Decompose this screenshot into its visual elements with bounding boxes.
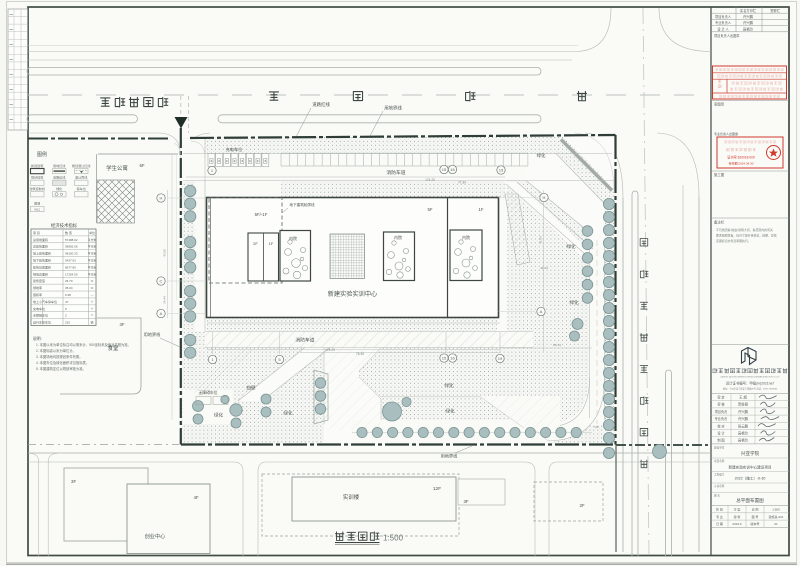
svg-text:个: 个 (91, 300, 94, 304)
svg-text:平方米: 平方米 (88, 259, 97, 263)
svg-text:平方米: 平方米 (88, 245, 97, 249)
svg-text:绿化: 绿化 (56, 186, 62, 191)
svg-text:创业中心: 创业中心 (145, 532, 166, 540)
svg-text:充电车位: 充电车位 (33, 306, 45, 311)
svg-text:内院: 内院 (289, 235, 297, 241)
svg-text:A: A (540, 309, 543, 314)
svg-text:工程编号: 工程编号 (714, 473, 725, 477)
svg-text:总平面布置图: 总平面布置图 (736, 497, 764, 504)
svg-text:项目负责人出图章: 项目负责人出图章 (714, 33, 740, 38)
svg-text:项目负责人: 项目负责人 (715, 14, 732, 19)
svg-text:建设单位: 建设单位 (714, 446, 725, 450)
svg-text:无障碍车位: 无障碍车位 (33, 313, 48, 318)
svg-text:2F: 2F (579, 503, 584, 508)
svg-text:1:500: 1:500 (383, 534, 404, 543)
svg-text:C: C (160, 279, 163, 284)
svg-text:77.30: 77.30 (458, 181, 466, 185)
svg-text:26.70: 26.70 (65, 279, 73, 283)
svg-text:H: H (160, 196, 163, 201)
svg-text:5F: 5F (427, 207, 432, 212)
svg-text:比 例: 比 例 (752, 507, 759, 512)
svg-text:绿化: 绿化 (445, 408, 455, 415)
svg-text:2024.6: 2024.6 (732, 522, 742, 526)
svg-text:新建实验实训中心: 新建实验实训中心 (328, 290, 378, 298)
svg-text:自行车停车位: 自行车停车位 (33, 320, 51, 325)
svg-text:现状建筑: 现状建筑 (31, 175, 43, 180)
svg-text:辆: 辆 (91, 321, 94, 325)
svg-text:有效期:2024.06.30: 有效期:2024.06.30 (729, 161, 754, 166)
svg-text:说明:: 说明: (33, 336, 42, 341)
svg-text:专业负责人出图章: 专业负责人出图章 (714, 131, 738, 136)
svg-text:3437.63: 3437.63 (65, 259, 76, 263)
svg-text:3F: 3F (120, 322, 125, 327)
svg-text:子项名称: 子项名称 (714, 484, 725, 488)
svg-text:食堂: 食堂 (108, 344, 119, 352)
svg-text:平方米: 平方米 (88, 265, 97, 269)
svg-text:19: 19 (498, 356, 503, 361)
svg-text:总建筑面积: 总建筑面积 (33, 244, 48, 249)
svg-text:2022（施工）-0-30: 2022（施工）-0-30 (735, 476, 766, 481)
svg-text:消防车道: 消防车道 (386, 169, 405, 176)
svg-text:经济技术指标: 经济技术指标 (51, 222, 78, 229)
svg-text:16: 16 (450, 167, 455, 172)
svg-text:新建实验实训中心建设项目: 新建实验实训中心建设项目 (728, 465, 771, 470)
svg-text:建筑密度: 建筑密度 (33, 278, 45, 283)
svg-text:47: 47 (65, 300, 69, 304)
svg-text:用地界线: 用地界线 (384, 105, 402, 112)
svg-text:签署栏: 签署栏 (770, 8, 780, 13)
svg-text:方 案: 方 案 (734, 507, 741, 512)
svg-text:道路红线: 道路红线 (312, 101, 330, 108)
svg-text:绿地总面积: 绿地总面积 (33, 271, 48, 276)
svg-text:容积率: 容积率 (33, 292, 42, 297)
svg-text:绿化: 绿化 (566, 243, 576, 250)
svg-text:实名打印栏: 实名打印栏 (740, 8, 757, 13)
svg-text:实训楼: 实训楼 (343, 493, 360, 501)
svg-text:绿化: 绿化 (569, 299, 579, 306)
svg-text:建筑基底面积: 建筑基底面积 (33, 264, 51, 269)
svg-text:高艳玲: 高艳玲 (738, 438, 749, 443)
svg-text:设 计 人: 设 计 人 (717, 26, 729, 31)
svg-text:用地界线: 用地界线 (144, 331, 162, 338)
svg-text:1:500: 1:500 (772, 508, 780, 512)
svg-text:3F: 3F (71, 479, 76, 484)
svg-text:许兴鹏: 许兴鹏 (743, 20, 754, 25)
svg-text:审图章: 审图章 (714, 102, 725, 107)
svg-text:19: 19 (499, 168, 504, 173)
svg-text:地上小汽车停车位: 地上小汽车停车位 (33, 299, 57, 304)
svg-text:项目负责: 项目负责 (715, 409, 728, 414)
svg-text:专 业: 专 业 (716, 514, 723, 519)
svg-text:平方米: 平方米 (88, 238, 97, 242)
svg-text:新建建筑: 新建建筑 (31, 163, 43, 168)
svg-text:审 定: 审 定 (717, 395, 725, 400)
svg-text:数 值: 数 值 (65, 230, 72, 235)
svg-text:项 目: 项 目 (33, 231, 40, 235)
svg-text:地下建筑轮廓线: 地下建筑轮廓线 (289, 202, 315, 207)
svg-text:施工图: 施工图 (714, 172, 725, 177)
svg-text:挡壁: 挡壁 (246, 385, 256, 392)
svg-text:1F: 1F (269, 241, 274, 246)
svg-text:建施总-001: 建施总-001 (768, 514, 783, 519)
svg-text:无障碍车位: 无障碍车位 (199, 390, 218, 395)
svg-text:174.20: 174.20 (425, 178, 435, 182)
svg-text:专业负责人: 专业负责人 (715, 20, 732, 25)
svg-text:7.00: 7.00 (593, 425, 599, 429)
svg-text:审 核: 审 核 (717, 402, 725, 407)
svg-text:贾俊丽: 贾俊丽 (738, 402, 749, 407)
svg-text:定期标识文件及审图执行。: 定期标识文件及审图执行。 (716, 238, 751, 243)
svg-text:单位: 单位 (89, 231, 95, 235)
svg-text:W12: W12 (34, 208, 40, 212)
svg-text:充电车位: 充电车位 (226, 146, 243, 153)
svg-text:17254.50: 17254.50 (65, 272, 78, 276)
svg-text:制 图: 制 图 (717, 438, 724, 443)
svg-text:许兴鹏: 许兴鹏 (743, 14, 754, 19)
svg-text:日 期: 日 期 (716, 521, 723, 526)
svg-text:12F: 12F (433, 486, 441, 492)
svg-text:消防车道: 消防车道 (295, 337, 314, 344)
svg-text:专业负责: 专业负责 (715, 416, 728, 421)
svg-text:9677.80: 9677.80 (65, 265, 76, 269)
svg-text:2F: 2F (253, 241, 258, 246)
svg-text:内院: 内院 (394, 234, 402, 240)
svg-text:内院: 内院 (462, 234, 470, 240)
svg-text:道路边线: 道路边线 (53, 175, 65, 180)
svg-text:学生公寓: 学生公寓 (106, 164, 128, 172)
svg-text:个: 个 (91, 314, 94, 318)
svg-text:16: 16 (450, 356, 455, 361)
svg-text:41.04: 41.04 (539, 236, 543, 244)
svg-text:15: 15 (442, 356, 447, 361)
svg-text:建筑控制线: 建筑控制线 (29, 186, 44, 191)
svg-text:项目名称: 项目名称 (714, 459, 725, 463)
svg-text:A: A (160, 311, 163, 316)
svg-text:H: H (543, 195, 546, 200)
svg-text:80.14: 80.14 (553, 343, 561, 347)
svg-text:设计证书编号：甲级(in)2021na7: 设计证书编号：甲级(in)2021na7 (726, 381, 775, 386)
svg-text:3F: 3F (463, 499, 468, 504)
svg-text:绿化: 绿化 (444, 382, 454, 389)
svg-text:版本号: 版本号 (750, 521, 759, 526)
svg-text:绿化: 绿化 (537, 152, 546, 159)
svg-text:绿化: 绿化 (283, 410, 293, 417)
svg-text:图 名: 图 名 (714, 494, 720, 498)
svg-text:41.04: 41.04 (540, 266, 548, 270)
svg-text:34.44: 34.44 (163, 296, 167, 304)
svg-text:4. 本图车位及绿化面积详见指标表。: 4. 本图车位及绿化面积详见指标表。 (36, 360, 89, 365)
svg-text:38150.33: 38150.33 (65, 252, 78, 256)
svg-text:围墙: 围墙 (34, 201, 40, 206)
svg-text:57188.02: 57188.02 (65, 238, 78, 242)
svg-text:图 号: 图 号 (752, 514, 759, 519)
svg-text:6F: 6F (139, 163, 144, 168)
svg-text:地上建筑面积: 地上建筑面积 (33, 251, 51, 256)
svg-text:地下建筑面积: 地下建筑面积 (33, 258, 51, 263)
svg-text:设 计: 设 计 (717, 431, 725, 436)
svg-text:规划退让红线: 规划退让红线 (72, 163, 91, 168)
svg-text:图例: 图例 (37, 151, 47, 158)
svg-text:38582.66: 38582.66 (65, 245, 78, 249)
svg-text:4F: 4F (193, 495, 198, 500)
svg-text:绿化: 绿化 (214, 412, 224, 419)
svg-text:2. 本图标高以米为单位计。: 2. 本图标高以米为单位计。 (36, 348, 76, 353)
svg-text:5. 本图建筑定位以规划审批为准。: 5. 本图建筑定位以规划审批为准。 (36, 366, 86, 371)
svg-text:建 筑: 建 筑 (734, 514, 741, 519)
svg-text:张云鹏: 张云鹏 (738, 423, 749, 428)
svg-text:3. 本图场地均按规划条件布置。: 3. 本图场地均按规划条件布置。 (36, 354, 83, 359)
svg-text:15: 15 (442, 167, 447, 172)
svg-text:平方米: 平方米 (88, 252, 97, 256)
svg-text:用地界线: 用地界线 (441, 453, 459, 460)
svg-text:总用地面积: 总用地面积 (33, 237, 48, 242)
svg-text:兴亚学院: 兴亚学院 (741, 450, 760, 457)
svg-text:1F: 1F (478, 207, 483, 212)
svg-text:220: 220 (65, 321, 70, 325)
svg-text:绿地率: 绿地率 (33, 285, 42, 290)
svg-text:平方米: 平方米 (88, 272, 97, 276)
svg-text:用地红线: 用地红线 (53, 163, 65, 168)
svg-text:备注栏: 备注栏 (714, 220, 725, 225)
svg-text:阶 段: 阶 段 (716, 507, 723, 512)
svg-text:0.38: 0.38 (65, 293, 71, 297)
svg-text:—: — (91, 293, 94, 297)
svg-text:174.20: 174.20 (325, 348, 335, 352)
svg-text:不可抗因素(地震)暴雨大风，各范围内的有关: 不可抗因素(地震)暴雨大风，各范围内的有关 (716, 227, 773, 232)
svg-text:许兴鹏: 许兴鹏 (738, 409, 749, 414)
svg-text:许兴鹏: 许兴鹏 (738, 416, 749, 421)
svg-text:76.45: 76.45 (356, 352, 364, 356)
svg-text:证书号:620018-009: 证书号:620018-009 (727, 155, 755, 160)
svg-text:校 对: 校 对 (717, 423, 725, 428)
svg-text:停车位: 停车位 (77, 186, 86, 191)
svg-text:个: 个 (91, 307, 94, 311)
svg-text:高艳玲: 高艳玲 (738, 431, 749, 436)
svg-text:要求按照样板，标尺寸提升审核位，按图、复核: 要求按照样板，标尺寸提升审核位，按图、复核 (716, 232, 777, 237)
svg-text:5F/-1F: 5F/-1F (255, 212, 268, 217)
svg-text:高艳玲: 高艳玲 (743, 26, 754, 31)
svg-text:01: 01 (774, 522, 778, 526)
svg-text:退让界线: 退让界线 (75, 175, 87, 180)
svg-text:35.04: 35.04 (65, 286, 73, 290)
svg-text:王 超: 王 超 (739, 395, 747, 400)
svg-text:43.50: 43.50 (163, 249, 167, 257)
